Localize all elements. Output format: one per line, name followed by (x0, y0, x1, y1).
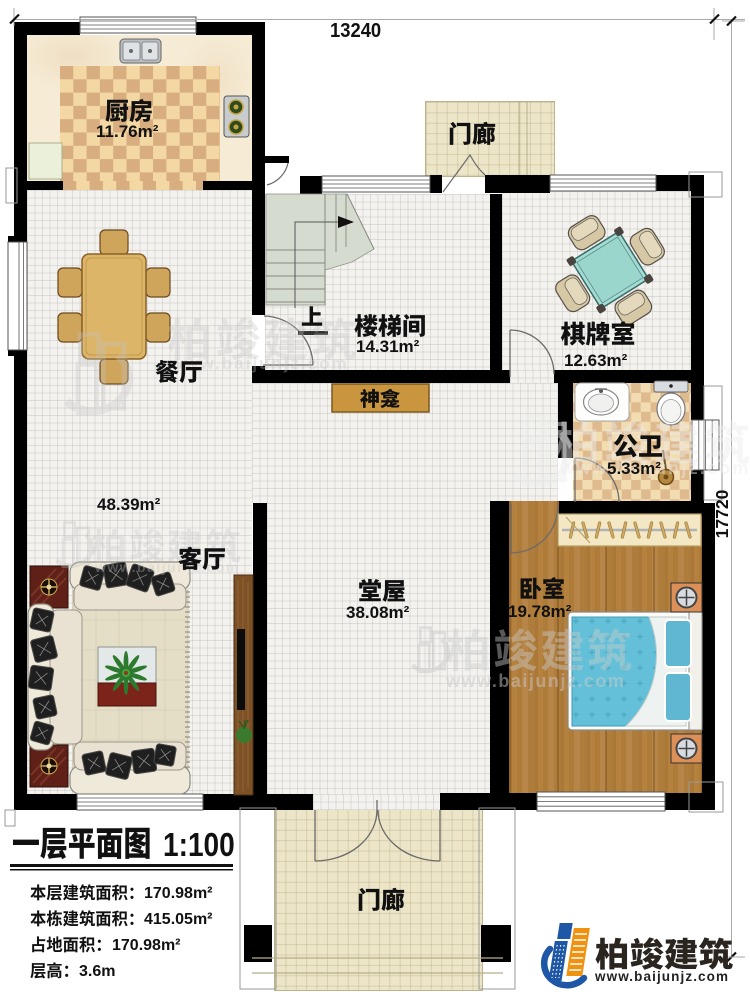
svg-text:www.baijunjz.com: www.baijunjz.com (445, 671, 625, 691)
